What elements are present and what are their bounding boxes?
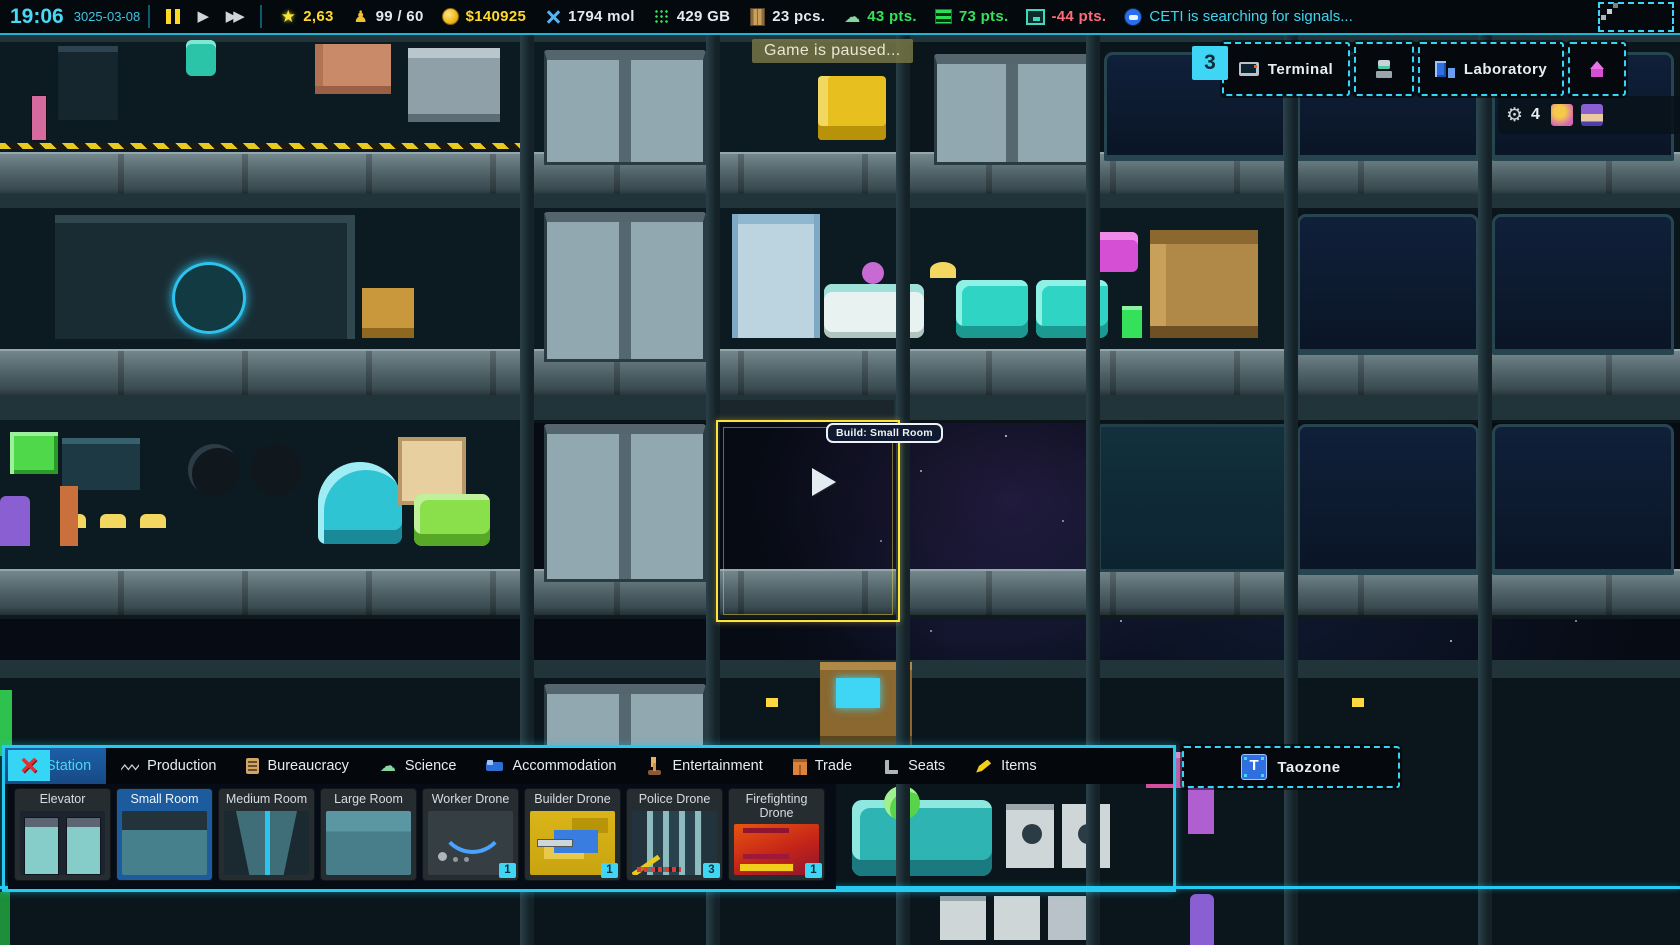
hazard-stripe: [0, 143, 520, 149]
monitor-icon: [1239, 62, 1259, 76]
brain-icon: ☁: [843, 8, 861, 26]
taozone-home-button[interactable]: [1568, 42, 1626, 96]
tab-label: Trade: [815, 758, 852, 774]
pause-button[interactable]: [158, 4, 188, 30]
count-badge: 1: [805, 863, 822, 878]
deck: [0, 349, 1680, 401]
build-item-worker-drone[interactable]: Worker Drone 1: [422, 788, 519, 881]
scene-prop: [10, 432, 58, 474]
crew-panel[interactable]: ⚙ 4: [1498, 96, 1680, 134]
coin-icon: [442, 8, 459, 25]
resource-value: 23 pcs.: [772, 8, 825, 25]
scene-prop: [930, 262, 956, 278]
star-icon: ★: [279, 8, 297, 26]
taozone-label: Taozone: [1277, 759, 1340, 776]
resource-data-storage: 429 GB: [653, 8, 731, 26]
tab-items[interactable]: Items: [960, 748, 1051, 784]
build-item-large-room[interactable]: Large Room: [320, 788, 417, 881]
build-item-list: Elevator Small Room Medium Room Large Ro…: [8, 784, 836, 889]
build-placement-ghost[interactable]: [716, 420, 900, 622]
scene-prop: [315, 44, 391, 94]
ceiling-lamp: [766, 698, 778, 707]
build-item-label: Large Room: [321, 789, 416, 809]
build-tooltip: Build: Small Room: [826, 423, 943, 443]
resource-molecules: 1794 mol: [544, 8, 635, 26]
elevator-doors: [544, 212, 706, 362]
house-icon: [1588, 61, 1606, 77]
resource-value: 2,63: [303, 8, 333, 25]
clipboard-icon: [246, 758, 259, 774]
gear-icon: ⚙: [1506, 104, 1523, 127]
elevator-doors: [544, 50, 706, 165]
scene-prop: [940, 896, 986, 940]
tab-label: Science: [405, 758, 457, 774]
robot-icon: [1376, 60, 1392, 78]
ceti-bot-icon: [1124, 8, 1142, 26]
scene-prop: [836, 678, 880, 708]
build-item-firefighting-drone[interactable]: Firefighting Drone 1: [728, 788, 825, 881]
resource-value: 429 GB: [677, 8, 731, 25]
count-badge: 1: [499, 863, 516, 878]
tab-label: Production: [147, 758, 216, 774]
resource-research-points: ☁ 43 pts.: [843, 8, 917, 26]
scene-prop: [414, 494, 490, 546]
chair-icon: [882, 758, 900, 775]
scene-character: [1190, 894, 1214, 945]
scene-prop: [188, 444, 240, 496]
tab-label: Items: [1001, 758, 1036, 774]
top-bar: 19:06 3025-03-08 ▶ ▶▶ ★ 2,63 ♟ 99 / 60 $…: [0, 0, 1680, 35]
crate-icon: [750, 8, 765, 26]
tab-seats[interactable]: Seats: [867, 748, 960, 784]
window: [1297, 214, 1479, 355]
build-item-label: Firefighting Drone: [729, 789, 824, 822]
scene-prop: [62, 438, 140, 490]
scene-character: [862, 262, 884, 284]
server-icon: [935, 9, 952, 24]
scene-prop: [0, 892, 10, 945]
charge-bar: [739, 863, 794, 872]
tab-bureaucracy[interactable]: Bureaucracy: [231, 748, 363, 784]
scene-character: [0, 496, 30, 546]
tab-label: Entertainment: [672, 758, 762, 774]
resource-station-rating: ★ 2,63: [279, 8, 333, 26]
resource-production-points: 73 pts.: [935, 8, 1009, 26]
crate-icon: [793, 759, 807, 775]
tab-trade[interactable]: Trade: [778, 748, 867, 784]
tab-label: Station: [46, 758, 91, 774]
fast-forward-button[interactable]: ▶▶: [218, 4, 248, 30]
play-button[interactable]: ▶: [188, 4, 218, 30]
tab-label: Accommodation: [512, 758, 616, 774]
game-time: 19:06: [10, 5, 64, 29]
tab-label: Bureaucracy: [267, 758, 348, 774]
scene-character: [32, 96, 46, 140]
scene-character: [60, 486, 78, 546]
resource-value: 99 / 60: [376, 8, 424, 25]
elevator-doors: [544, 424, 706, 582]
small-room-preview: [122, 811, 207, 876]
drone-button[interactable]: [1354, 42, 1414, 96]
scene-prop: [1150, 230, 1258, 338]
resource-value: $140925: [466, 8, 527, 25]
build-item-label: Small Room: [117, 789, 212, 809]
tab-science[interactable]: ☁ Science: [364, 748, 472, 784]
game-date: 3025-03-08: [74, 9, 141, 24]
resource-parts: 23 pcs.: [748, 8, 825, 26]
window: [1297, 424, 1479, 575]
resource-crew-capacity: ♟ 99 / 60: [352, 8, 424, 26]
column: [1478, 33, 1492, 945]
close-build-menu-button[interactable]: ×: [8, 750, 50, 781]
build-ghost-lintel: [720, 400, 894, 422]
build-item-elevator[interactable]: Elevator: [14, 788, 111, 881]
tab-entertainment[interactable]: Entertainment: [631, 748, 777, 784]
resource-value: 73 pts.: [959, 8, 1009, 25]
terminal-button[interactable]: Terminal: [1222, 42, 1350, 96]
charge-bar: [637, 867, 681, 872]
molecule-icon: [544, 8, 562, 26]
elevator-doors: [934, 54, 1090, 165]
build-item-label: Elevator: [15, 789, 110, 809]
status-message: CETI is searching for signals...: [1149, 8, 1352, 25]
resource-credits: $140925: [442, 8, 527, 26]
resource-value: -44 pts.: [1051, 8, 1106, 25]
pencil-icon: [975, 758, 993, 775]
clock-segment: 19:06 3025-03-08: [0, 0, 140, 33]
terminal-label: Terminal: [1268, 61, 1333, 78]
tab-accommodation[interactable]: Accommodation: [471, 748, 631, 784]
divider: [148, 5, 150, 28]
taozone-icon: [1241, 754, 1267, 780]
laboratory-button[interactable]: Laboratory: [1418, 42, 1564, 96]
tab-production[interactable]: Production: [106, 748, 231, 784]
window: [1492, 214, 1674, 355]
count-badge: 3: [703, 863, 720, 878]
scene-prop: [818, 76, 886, 140]
room-icon: [1026, 9, 1045, 25]
build-menu-tabs: × Station Production Bureaucracy ☁ Scien…: [5, 748, 1173, 784]
scene-prop: [1122, 306, 1142, 338]
build-menu-panel: × Station Production Bureaucracy ☁ Scien…: [2, 745, 1176, 892]
data-grid-icon: [654, 9, 670, 25]
brain-icon: ☁: [379, 758, 397, 775]
build-item-builder-drone[interactable]: Builder Drone 1: [524, 788, 621, 881]
resource-value: 1794 mol: [568, 8, 635, 25]
large-room-preview: [326, 811, 411, 876]
bed-icon: [486, 758, 504, 775]
build-item-label: Medium Room: [219, 789, 314, 809]
statue-icon: ♟: [352, 8, 370, 26]
expand-icon[interactable]: [1598, 2, 1674, 32]
paused-banner: Game is paused...: [752, 39, 913, 63]
build-item-label: Worker Drone: [423, 789, 518, 809]
build-item-label: Builder Drone: [525, 789, 620, 809]
crew-count: 4: [1531, 106, 1540, 124]
resource-value: 43 pts.: [867, 8, 917, 25]
wave-icon: [121, 758, 139, 775]
build-item-police-drone[interactable]: Police Drone 3: [626, 788, 723, 881]
taozone-button[interactable]: Taozone: [1182, 746, 1400, 788]
speed-controls: ▶ ▶▶: [158, 0, 252, 33]
build-item-small-room[interactable]: Small Room: [116, 788, 213, 881]
elevator-preview: [20, 811, 105, 876]
status-message-area: CETI is searching for signals...: [1124, 8, 1352, 26]
scene-prop: [58, 46, 118, 120]
laboratory-icon: [1435, 60, 1455, 78]
scene-prop: [362, 288, 414, 338]
divider: [260, 5, 262, 28]
tab-label: Seats: [908, 758, 945, 774]
build-item-label: Police Drone: [627, 789, 722, 809]
crew-portrait[interactable]: [1580, 103, 1604, 127]
laboratory-label: Laboratory: [1464, 61, 1547, 78]
scene-prop: [732, 214, 820, 338]
terminal-notification-badge: 3: [1192, 46, 1228, 80]
column: [1284, 33, 1298, 945]
joystick-icon: [646, 758, 664, 775]
scene-prop: [408, 48, 500, 122]
elevator-glass: [1098, 424, 1288, 572]
resource-comfort-points: -44 pts.: [1026, 8, 1106, 25]
build-item-medium-room[interactable]: Medium Room: [218, 788, 315, 881]
crew-portrait[interactable]: [1550, 103, 1574, 127]
medium-room-preview: [224, 811, 309, 876]
cursor-pointer: [812, 468, 836, 496]
scene-prop: [318, 462, 402, 544]
scene-prop: [956, 280, 1028, 338]
scene-prop: [186, 40, 216, 76]
scene-prop: [172, 262, 246, 334]
window: [1492, 424, 1674, 575]
count-badge: 1: [601, 863, 618, 878]
close-icon: ×: [20, 753, 38, 779]
